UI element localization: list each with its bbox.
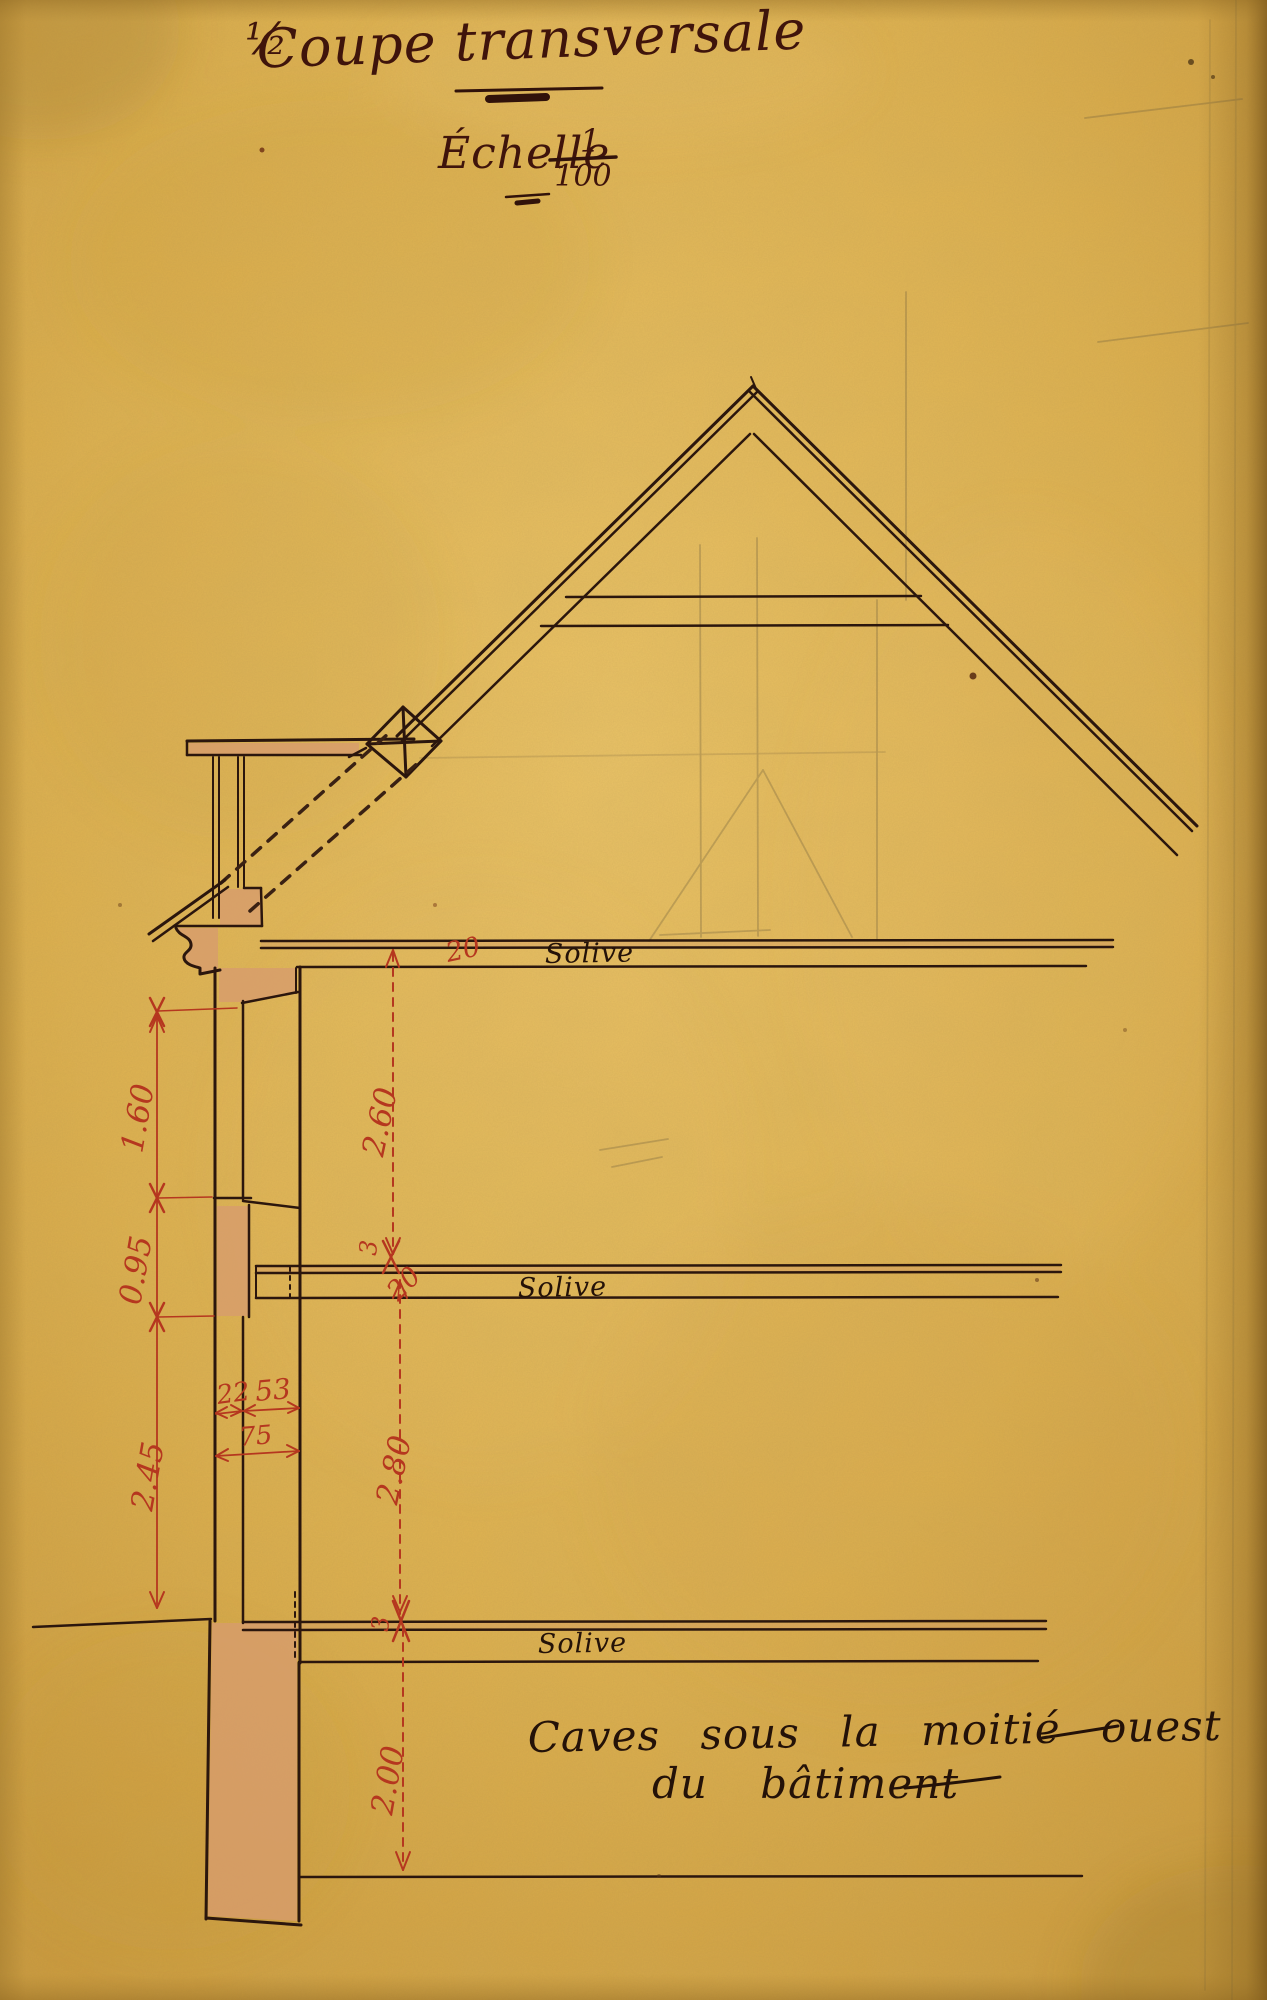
caption-line2: du bâtiment xyxy=(652,1759,959,1808)
label-solive-middle: Solive xyxy=(518,1271,608,1304)
dim-label-3-ground: 3 xyxy=(366,1615,395,1633)
dim-label-75: 75 xyxy=(238,1420,274,1453)
paper-background xyxy=(0,0,1267,2000)
dim-label-53: 53 xyxy=(254,1372,292,1408)
drawing-canvas: ½ Coupe transversale Échelle 1 100 Soliv… xyxy=(0,0,1267,2000)
dim-label-3-middle: 3 xyxy=(354,1239,383,1257)
drawing-sheet: ½ Coupe transversale Échelle 1 100 Soliv… xyxy=(0,0,1267,2000)
scale-numerator: 1 xyxy=(580,122,600,160)
scale-denominator: 100 xyxy=(554,159,611,194)
label-solive-attic: Solive xyxy=(545,937,635,970)
label-solive-ground: Solive xyxy=(538,1627,628,1660)
dim-label-22: 22 xyxy=(214,1377,252,1411)
